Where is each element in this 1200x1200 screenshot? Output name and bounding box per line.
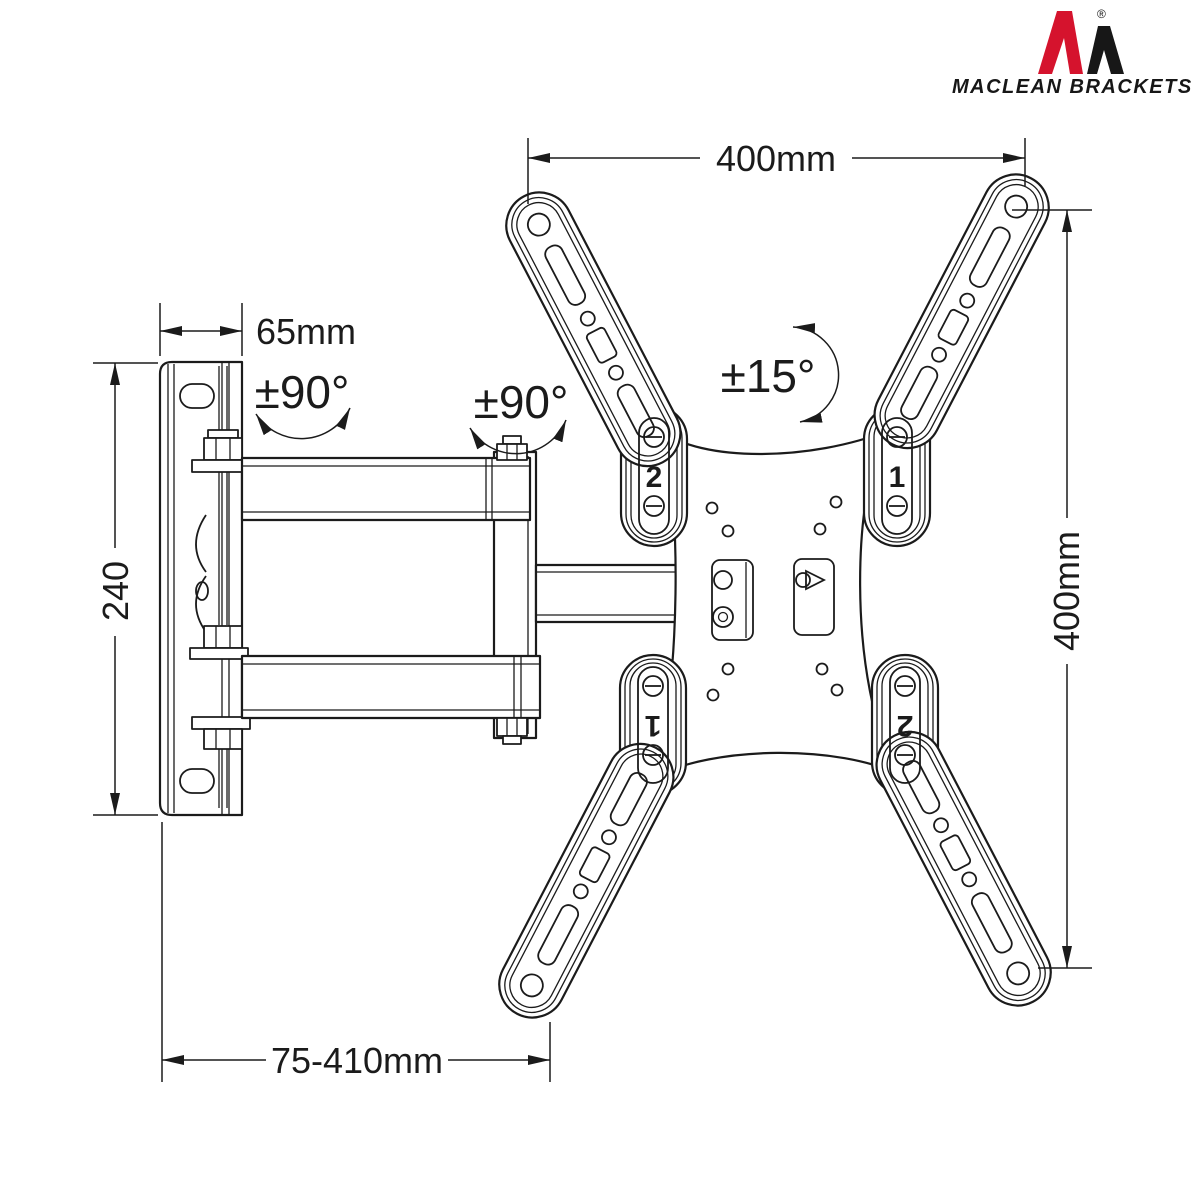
angle-label-swivel-arm: ±90° (474, 376, 569, 428)
angle-tilt: ±15° (721, 327, 839, 422)
logo: ® MACLEAN BRACKETS (952, 7, 1193, 98)
dimension-plate-depth: 65mm (160, 303, 356, 356)
dimension-label-vesa-width: 400mm (716, 138, 836, 179)
arm-number-bottom-right: 2 (897, 709, 914, 742)
hinge-nut-top (204, 438, 242, 460)
dimension-top-width: 400mm (528, 138, 1025, 204)
arm-number-top-left: 2 (646, 461, 663, 494)
dimension-extension-range: 75-410mm (162, 822, 550, 1082)
arm-lower-bar (242, 656, 540, 718)
brand-name: MACLEAN BRACKETS (952, 76, 1193, 98)
dimension-right-height: 400mm (1012, 210, 1092, 968)
dimension-label-extension-range: 75-410mm (271, 1040, 443, 1081)
vesa-arm-top-right (863, 163, 1060, 460)
logo-m-black-icon (1087, 26, 1124, 74)
wall-mounting-slot-bottom (180, 769, 214, 793)
hinge-nut-middle (204, 626, 242, 648)
arm-upper-bar (242, 458, 530, 520)
angle-label-swivel-wall: ±90° (255, 366, 350, 418)
angle-label-tilt: ±15° (721, 350, 816, 402)
dimension-wall-plate-height: 240 (93, 363, 158, 815)
dimension-label-plate-depth: 65mm (256, 311, 356, 352)
angle-swivel-wall: ±90° (255, 366, 350, 439)
tv-wall-mount-diagram: 2 1 1 2 400mm 400mm 240 65mm 75-410 (0, 0, 1200, 1200)
logo-m-red-icon (1038, 11, 1083, 74)
link-bolt-bottom (497, 718, 527, 736)
technical-drawing-page: 2 1 1 2 400mm 400mm 240 65mm 75-410 (0, 0, 1200, 1200)
arm-number-bottom-left: 1 (645, 709, 662, 742)
wall-mounting-slot-top (180, 384, 214, 408)
hinge-nut-bottom (204, 729, 242, 749)
dimension-label-wall-plate-height: 240 (95, 561, 136, 621)
arm-number-top-right: 1 (889, 461, 906, 494)
registered-trademark: ® (1097, 7, 1106, 21)
vesa-arm-bottom-right (865, 720, 1062, 1017)
vesa-center-plate (652, 430, 900, 778)
dimension-label-vesa-height: 400mm (1046, 531, 1087, 651)
vesa-arm-bottom-left (488, 732, 685, 1029)
